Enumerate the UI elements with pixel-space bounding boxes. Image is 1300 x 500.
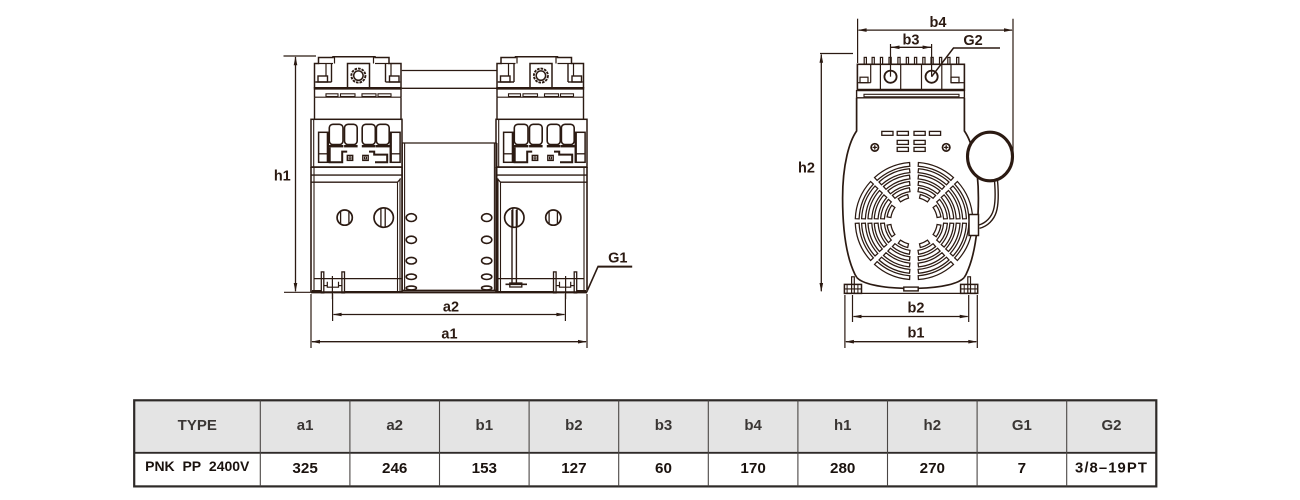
- svg-text:b2: b2: [565, 417, 583, 434]
- svg-text:7: 7: [1018, 460, 1026, 477]
- svg-text:b1: b1: [908, 326, 925, 342]
- svg-text:a1: a1: [441, 327, 457, 343]
- svg-text:3/8–19PT: 3/8–19PT: [1075, 461, 1148, 477]
- svg-text:a1: a1: [297, 417, 314, 434]
- svg-text:TYPE: TYPE: [178, 417, 217, 434]
- svg-text:246: 246: [382, 460, 407, 477]
- svg-text:153: 153: [472, 460, 497, 477]
- svg-text:b1: b1: [476, 417, 494, 434]
- svg-text:b3: b3: [655, 417, 673, 434]
- svg-text:G2: G2: [1101, 417, 1121, 434]
- svg-text:h2: h2: [798, 161, 815, 177]
- svg-text:60: 60: [655, 460, 672, 477]
- svg-text:280: 280: [830, 460, 855, 477]
- svg-text:270: 270: [920, 460, 945, 477]
- svg-text:h1: h1: [274, 168, 291, 184]
- svg-text:a2: a2: [443, 300, 459, 316]
- svg-text:127: 127: [561, 460, 586, 477]
- svg-text:G1: G1: [1012, 417, 1032, 434]
- svg-text:h1: h1: [834, 417, 852, 434]
- svg-text:b4: b4: [930, 15, 947, 31]
- svg-text:325: 325: [292, 460, 318, 477]
- svg-text:G1: G1: [608, 250, 627, 266]
- svg-text:b2: b2: [908, 300, 925, 316]
- svg-text:a2: a2: [386, 417, 403, 434]
- svg-text:h2: h2: [924, 417, 942, 434]
- svg-text:G2: G2: [963, 33, 982, 49]
- svg-text:b3: b3: [903, 32, 920, 48]
- svg-text:b4: b4: [744, 417, 762, 434]
- svg-text:170: 170: [740, 460, 765, 477]
- svg-text:PNK PP 2400V: PNK PP 2400V: [145, 458, 250, 474]
